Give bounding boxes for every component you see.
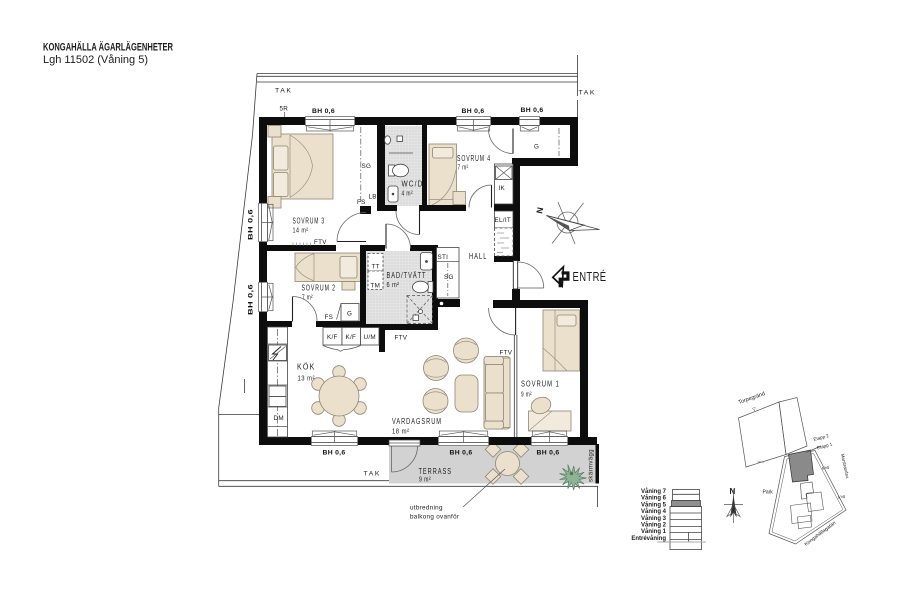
svg-text:G: G [347,311,352,318]
svg-text:BH 0,6: BH 0,6 [248,284,255,315]
svg-text:TT: TT [372,264,380,271]
svg-text:ENTRÉ: ENTRÉ [573,269,607,284]
svg-text:Våning 1: Våning 1 [641,528,667,535]
svg-text:SG: SG [362,163,372,170]
svg-text:LB: LB [369,194,377,201]
svg-text:Park: Park [763,490,774,496]
svg-text:balkong ovanför: balkong ovanför [410,514,459,521]
svg-text:Våning 2: Våning 2 [641,522,667,529]
svg-text:VARDAGSRUM: VARDAGSRUM [392,417,442,426]
svg-text:DM: DM [274,415,284,422]
svg-text:EL/IT: EL/IT [495,217,512,224]
svg-text:BH 0,6: BH 0,6 [312,108,335,115]
svg-text:BH 0,6: BH 0,6 [462,108,485,115]
svg-text:BH 0,6: BH 0,6 [521,107,544,114]
svg-text:G: G [534,144,539,151]
svg-text:4 m²: 4 m² [402,189,414,198]
svg-text:KÖK: KÖK [297,363,316,372]
svg-text:FTV: FTV [395,335,408,342]
svg-text:BH 0,6: BH 0,6 [450,450,473,457]
svg-text:9 m²: 9 m² [419,475,431,484]
svg-text:K/F: K/F [327,334,338,341]
svg-text:SG: SG [444,274,454,281]
svg-text:BH 0,6: BH 0,6 [248,209,255,240]
svg-text:Entrévåning: Entrévåning [631,535,666,542]
svg-text:Våning 3: Våning 3 [641,515,667,522]
svg-text:9 m²: 9 m² [521,390,532,399]
svg-text:FS: FS [357,199,366,206]
svg-text:TAK: TAK [275,88,293,95]
svg-text:7 m²: 7 m² [302,293,313,302]
svg-text:BAD/TVÄTT: BAD/TVÄTT [387,271,427,280]
svg-text:SOVRUM 2: SOVRUM 2 [302,284,337,293]
svg-text:TM: TM [371,283,381,290]
svg-text:WC/D: WC/D [402,180,424,189]
svg-text:BH 0,6: BH 0,6 [323,450,346,457]
svg-text:HALL: HALL [469,252,488,261]
svg-text:5R: 5R [280,106,289,113]
svg-text:N: N [730,487,736,496]
svg-text:FTV: FTV [314,239,327,246]
svg-text:14 m²: 14 m² [293,226,309,235]
svg-text:U/M: U/M [364,334,376,341]
svg-text:FTV: FTV [500,350,513,357]
svg-text:utbredning: utbredning [410,505,443,512]
svg-text:TAK: TAK [579,90,597,97]
svg-text:Våning 7: Våning 7 [641,488,667,495]
svg-text:7 m²: 7 m² [458,162,469,171]
svg-text:Våning 4: Våning 4 [641,508,667,515]
svg-text:13 m²: 13 m² [298,374,316,383]
svg-text:KONGAHÄLLA ÄGARLÄGENHETER: KONGAHÄLLA ÄGARLÄGENHETER [43,41,173,54]
svg-text:SOVRUM 1: SOVRUM 1 [521,380,560,389]
svg-text:SOVRUM 3: SOVRUM 3 [293,217,326,226]
svg-text:FS: FS [325,314,334,321]
svg-text:6 m²: 6 m² [387,280,400,289]
svg-text:IK: IK [499,185,506,192]
svg-text:Lgh 11502 (Våning 5): Lgh 11502 (Våning 5) [43,54,148,66]
svg-text:skärmvägg: skärmvägg [589,449,595,482]
svg-text:STI: STI [438,254,449,261]
svg-text:BH 0,6: BH 0,6 [537,450,560,457]
svg-text:Våning 5: Våning 5 [641,501,667,508]
svg-text:Våning 6: Våning 6 [641,495,667,502]
svg-text:TAK: TAK [364,471,382,478]
svg-text:18 m²: 18 m² [392,427,410,436]
svg-text:K/F: K/F [346,334,357,341]
